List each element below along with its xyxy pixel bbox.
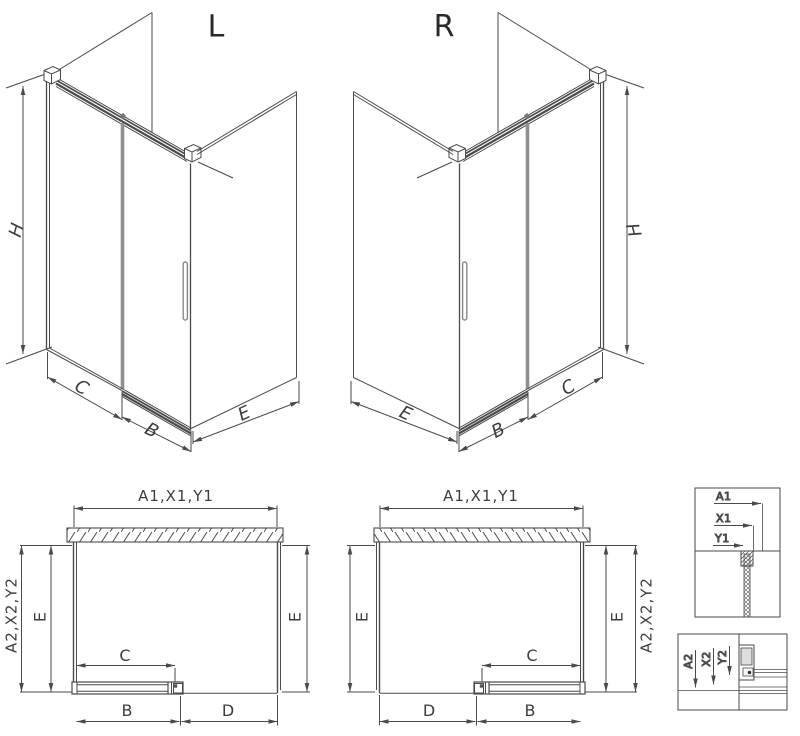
detail-roller-wheel [748, 671, 752, 675]
plan-e-left-label-l: E [31, 612, 50, 622]
plan-b-label-l: B [122, 701, 133, 720]
height-dim-label-left: H [5, 221, 29, 240]
detail-y2-label: Y2 [716, 650, 729, 666]
door-dim-label-right: B [488, 419, 509, 443]
detail-top-frame [695, 488, 780, 617]
detail-x1-label: X1 [716, 512, 732, 525]
iso-view-left: L H C B E [5, 10, 299, 453]
plan-width-label-left: A1,X1,Y1 [138, 487, 214, 505]
side-dim-label-left: E [235, 402, 255, 426]
detail-wall-profile: A1 X1 Y1 [695, 488, 780, 617]
plan-d-label-l: D [222, 701, 234, 720]
detail-wall-profile-section [741, 551, 753, 566]
variant-title-right: R [434, 10, 455, 45]
plan-e-right-label-l: E [286, 612, 305, 622]
plan-view-left: A1,X1,Y1 A2,X2,Y2 E E C B D [2, 487, 310, 726]
detail-y1-label: Y1 [714, 532, 730, 545]
detail-roller-body [741, 648, 752, 665]
plan-geometry-left [20, 506, 310, 726]
plan-e-right-label-r: E [608, 612, 627, 622]
iso-view-right: R H C B E [351, 10, 647, 453]
iso-geometry-right [351, 13, 644, 453]
height-dim-label-right: H [623, 220, 647, 239]
variant-title-left: L [208, 10, 225, 45]
detail-bottom-rail: A2 X2 Y2 [678, 634, 787, 710]
door-dim-label-left: B [141, 419, 162, 443]
detail-bottom-frame [678, 634, 787, 710]
plan-view-right: A1,X1,Y1 A2,X2,Y2 E E C B D [347, 487, 655, 726]
drawing-canvas: L H C B E R H C B E A1,X1,Y1 A2,X2,Y2 E … [0, 0, 800, 736]
detail-a2-label: A2 [682, 653, 695, 669]
plan-d-label-r: D [423, 701, 435, 720]
technical-drawing: L H C B E R H C B E A1,X1,Y1 A2,X2,Y2 E … [0, 0, 800, 736]
fixed-dim-label-left: C [71, 375, 93, 400]
plan-depth-label-left: A2,X2,Y2 [2, 577, 20, 653]
plan-width-label-right: A1,X1,Y1 [443, 487, 519, 505]
plan-e-left-label-r: E [353, 612, 372, 622]
plan-b-label-r: B [525, 701, 536, 720]
plan-depth-label-right: A2,X2,Y2 [637, 577, 655, 653]
iso-geometry-left [6, 13, 299, 453]
detail-a1-label: A1 [716, 490, 732, 503]
plan-geometry-right [347, 506, 637, 726]
side-dim-label-right: E [396, 402, 416, 426]
detail-x2-label: X2 [700, 651, 713, 667]
fixed-dim-label-right: C [558, 375, 580, 400]
plan-c-label-r: C [526, 646, 537, 665]
plan-c-label-l: C [119, 646, 130, 665]
